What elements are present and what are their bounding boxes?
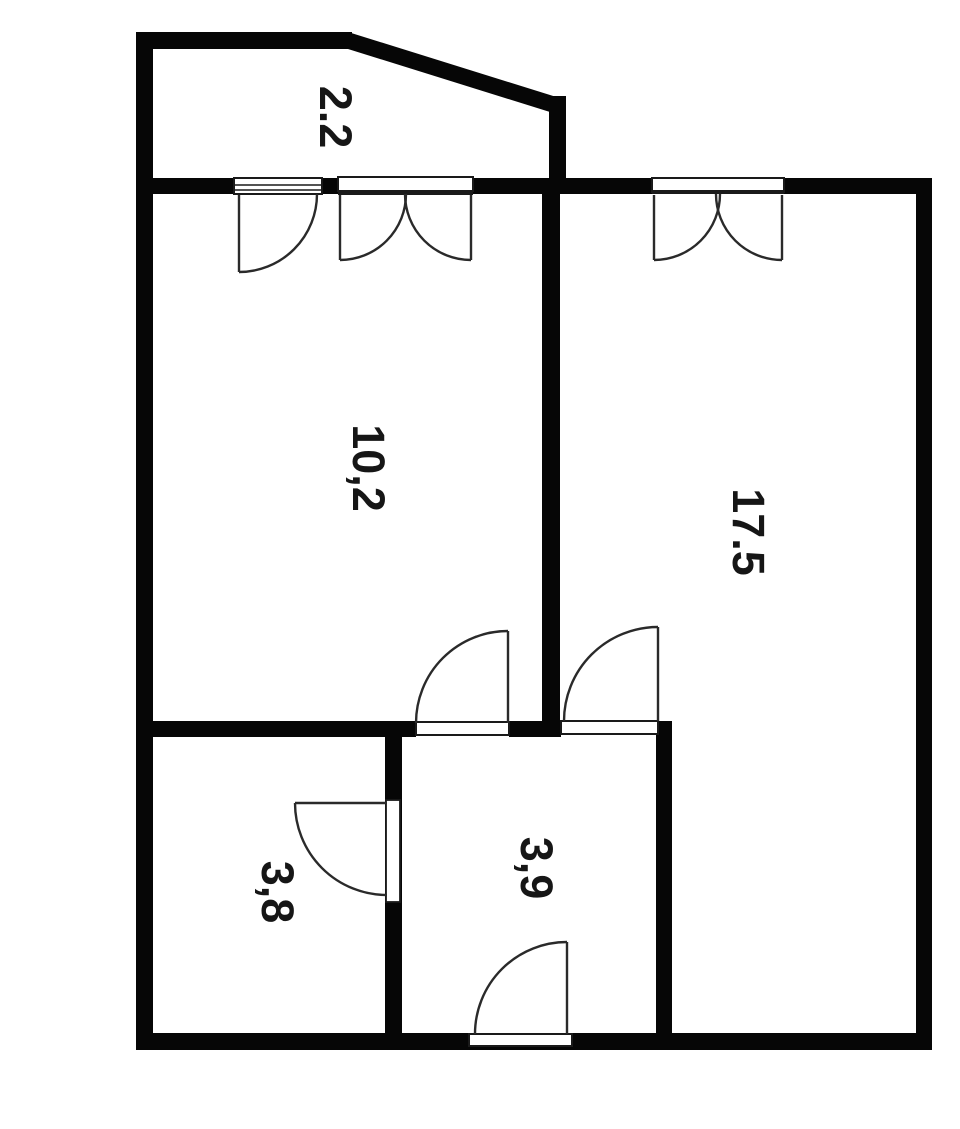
svg-text:3,8: 3,8 bbox=[252, 861, 303, 924]
svg-text:17.5: 17.5 bbox=[723, 488, 774, 576]
svg-text:2.2: 2.2 bbox=[310, 86, 361, 149]
svg-text:10,2: 10,2 bbox=[343, 424, 394, 512]
svg-text:3,9: 3,9 bbox=[511, 837, 562, 900]
